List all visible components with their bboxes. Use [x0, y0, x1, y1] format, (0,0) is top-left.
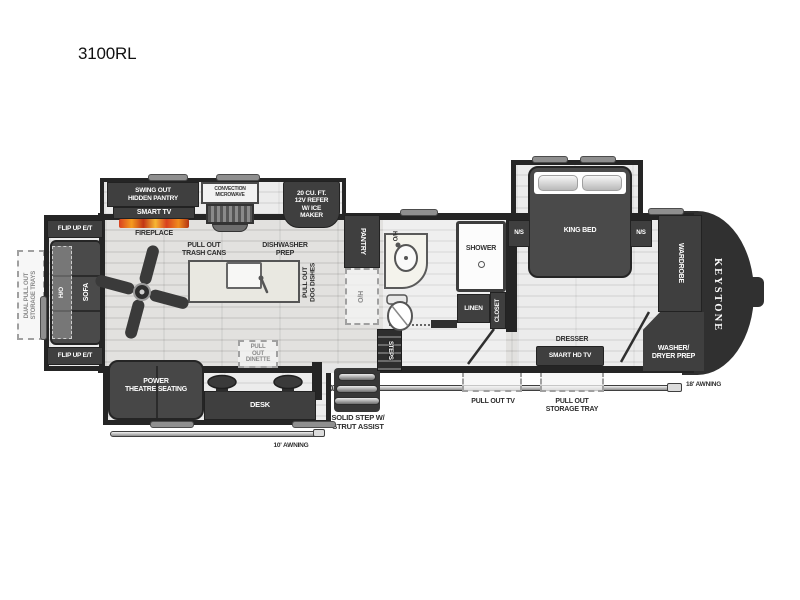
trash-cans-label: PULL OUT TRASH CANS	[160, 242, 248, 258]
island-sink	[226, 262, 262, 289]
flip-up-et-top: FLIP UP E/T	[47, 220, 103, 238]
pull-out-tv-label: PULL OUT TV	[455, 398, 531, 406]
awning-10-bar	[110, 431, 318, 437]
slide-handle	[216, 174, 260, 181]
dishwasher-prep-label: DISHWASHER PREP	[246, 242, 324, 258]
fireplace-flames-icon	[119, 219, 189, 228]
step-tread-3	[334, 397, 380, 405]
step-tread-2	[336, 385, 378, 393]
king-bed-label: KING BED	[533, 227, 627, 235]
pull-out-storage-tray-label: PULL OUT STORAGE TRAY	[526, 398, 618, 414]
pull-out-dinette-zone: PULL OUT DINETTE	[238, 340, 278, 368]
nightstand-right: N/S	[630, 220, 652, 247]
sliding-door-panel	[431, 320, 457, 328]
interior-steps: STEPS	[377, 329, 402, 371]
shower-box: SHOWER	[456, 221, 506, 292]
pantry-cabinet: PANTRY	[344, 215, 380, 268]
closet-cabinet: CLOSET	[490, 292, 506, 329]
smart-hd-tv-box: SMART HD TV	[536, 346, 604, 366]
washer-dryer-label: WASHER/ DRYER PREP	[652, 345, 695, 361]
awning-10-label: 10' AWNING	[256, 442, 326, 449]
sliding-door-track	[389, 324, 433, 326]
microwave-label: CONVECTION MICROWAVE	[214, 187, 245, 199]
sofa-overhead-zone: H/O	[52, 246, 72, 339]
sofa-label: SOFA	[83, 283, 91, 301]
sofa-overhead-label: H/O	[58, 287, 65, 298]
closet-label: CLOSET	[495, 299, 502, 322]
wardrobe-label: WARDROBE	[676, 243, 684, 283]
slide-handle	[292, 421, 336, 428]
nightstand-left-label: N/S	[514, 230, 523, 237]
slide-handle	[400, 209, 438, 216]
theatre-seating-label: POWER THEATRE SEATING	[110, 378, 202, 394]
fireplace-label: FIREPLACE	[109, 230, 199, 238]
pull-out-tv-zone	[462, 371, 522, 392]
refrigerator-label: 20 CU. FT. 12V REFER W/ ICE MAKER	[295, 190, 329, 220]
range-base	[212, 224, 248, 232]
slide-handle	[148, 174, 188, 181]
sofa-label-wrap: SOFA	[78, 265, 96, 320]
hidden-pantry-label: SWING OUT HIDDEN PANTRY	[128, 187, 178, 202]
step-tread-1	[338, 373, 376, 381]
flip-up-et-top-label: FLIP UP E/T	[58, 225, 92, 232]
nightstand-left: N/S	[508, 220, 530, 247]
floorplan-canvas: 3100RL 18' AWNING 10' AWNING PULL OUT TV…	[0, 0, 800, 600]
pantry-label: PANTRY	[358, 228, 366, 255]
linen-cabinet: LINEN	[457, 294, 490, 323]
washer-dryer-cabinet: WASHER/ DRYER PREP	[643, 312, 704, 371]
page-title: 3100RL	[78, 44, 136, 64]
slide-handle	[40, 296, 47, 340]
awning-18-label: 18' AWNING	[686, 381, 746, 388]
pull-out-storage-tray-zone	[540, 371, 604, 392]
microwave-box: CONVECTION MICROWAVE	[201, 182, 259, 204]
bath-overhead-label: H/O	[384, 222, 397, 250]
range-cooktop	[206, 204, 254, 224]
storage-trays-rear-label: DUAL PULL OUT STORAGE TRAYS	[24, 271, 38, 319]
slide-handle	[150, 421, 194, 428]
smart-tv-cabinet: SMART TV	[113, 207, 195, 219]
smart-hd-tv-label: SMART HD TV	[549, 352, 591, 359]
flip-up-et-bottom: FLIP UP E/T	[47, 347, 103, 365]
slide-handle	[580, 156, 616, 163]
refrigerator-box: 20 CU. FT. 12V REFER W/ ICE MAKER	[283, 181, 340, 228]
smart-tv-label: SMART TV	[137, 209, 171, 217]
pull-out-dinette-label: PULL OUT DINETTE	[246, 344, 270, 364]
shower-drain-icon	[478, 261, 485, 268]
dog-dishes-label: PULL OUT DOG DISHES	[302, 263, 317, 302]
brand-label: KEYSTONE	[706, 240, 728, 350]
nightstand-right-label: N/S	[636, 230, 645, 237]
pillow-icon	[538, 175, 578, 191]
dog-dishes-label-wrap: PULL OUT DOG DISHES	[299, 257, 319, 307]
dresser-label: DRESSER	[537, 336, 607, 344]
desk-label: DESK	[250, 401, 270, 410]
linen-label: LINEN	[464, 305, 483, 312]
hidden-pantry-cabinet: SWING OUT HIDDEN PANTRY	[107, 182, 199, 207]
pantry-overhead-label: O/H	[358, 291, 366, 303]
steps-label: STEPS	[386, 341, 393, 360]
slide-handle	[648, 208, 684, 215]
solid-step	[334, 368, 380, 412]
pillow-icon	[582, 175, 622, 191]
awning-18-endcap	[667, 383, 682, 392]
shower-label: SHOWER	[466, 245, 496, 253]
slide-handle	[532, 156, 568, 163]
wardrobe-cabinet: WARDROBE	[658, 215, 702, 312]
flip-up-et-bottom-label: FLIP UP E/T	[58, 352, 92, 359]
pantry-overhead-zone: O/H	[345, 268, 379, 325]
desk: DESK	[204, 391, 316, 420]
